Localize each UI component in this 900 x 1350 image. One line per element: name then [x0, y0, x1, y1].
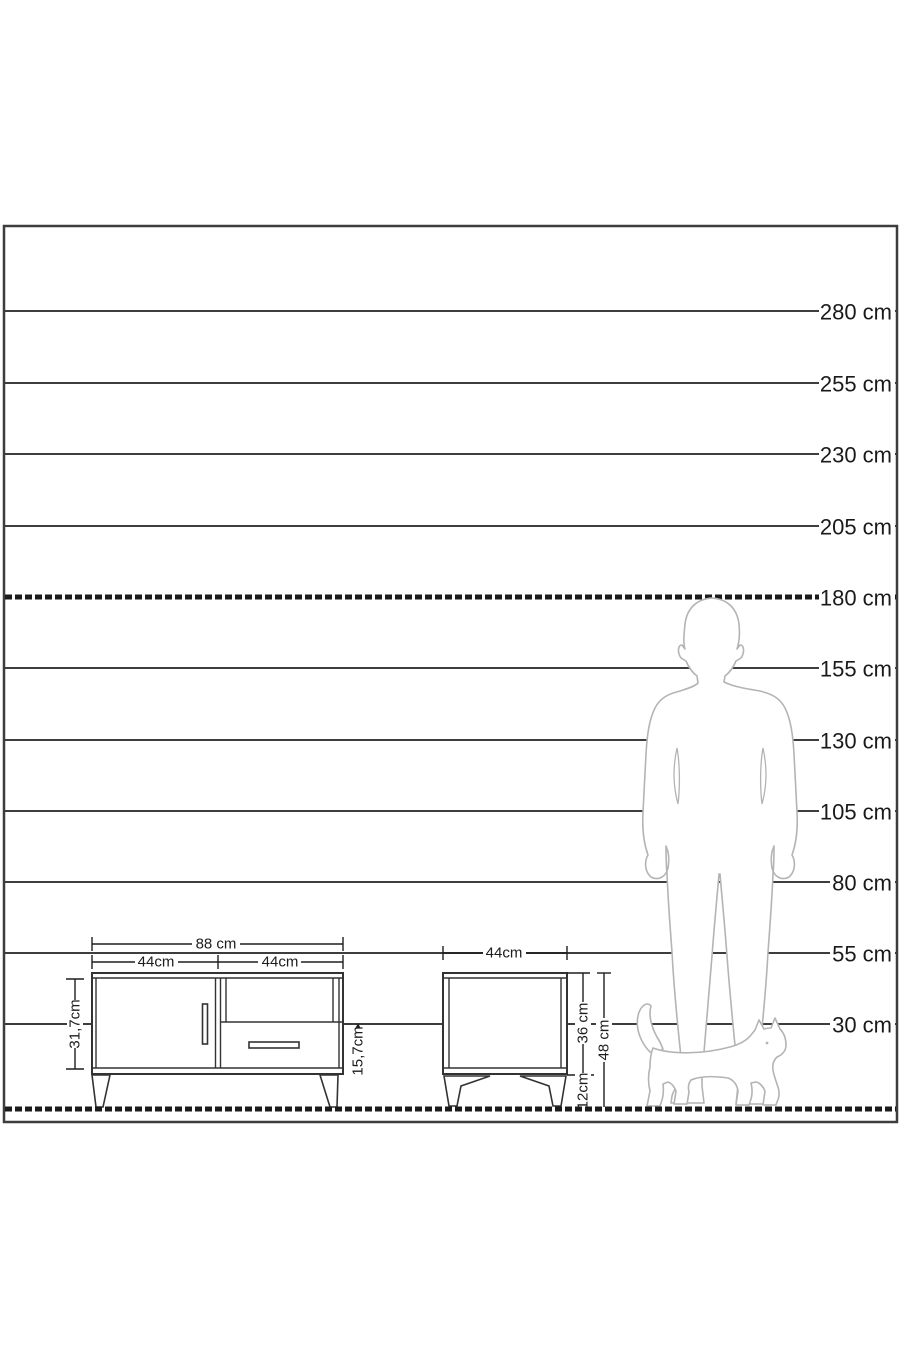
tv-stand-body-height-label: 31,7cm — [67, 999, 84, 1048]
cat-eye — [766, 1042, 769, 1045]
scale-label-30cm: 30 cm — [832, 1013, 892, 1038]
nightstand-total-height-label: 48 cm — [596, 1020, 613, 1061]
tv-stand-body — [92, 973, 343, 1074]
furniture-size-chart-page: 280 cm 255 cm 230 cm 205 cm 180 cm 155 c… — [0, 0, 900, 1350]
scale-label-105cm: 105 cm — [820, 800, 892, 825]
nightstand-body-height-label: 36 cm — [575, 1003, 592, 1044]
tv-stand-width-label: 88 cm — [196, 936, 237, 953]
scale-label-180cm: 180 cm — [820, 586, 892, 611]
scale-label-230cm: 230 cm — [820, 443, 892, 468]
tv-stand-shelf-height-label: 15,7cm — [350, 1026, 367, 1075]
tv-stand-drawer-handle — [249, 1042, 299, 1048]
nightstand-body — [443, 973, 567, 1074]
furniture-size-chart: 280 cm 255 cm 230 cm 205 cm 180 cm 155 c… — [0, 0, 900, 1350]
scale-label-255cm: 255 cm — [820, 372, 892, 397]
scale-label-205cm: 205 cm — [820, 515, 892, 540]
scale-label-155cm: 155 cm — [820, 657, 892, 682]
scale-label-280cm: 280 cm — [820, 300, 892, 325]
scale-label-55cm: 55 cm — [832, 942, 892, 967]
scale-label-130cm: 130 cm — [820, 729, 892, 754]
scale-label-80cm: 80 cm — [832, 871, 892, 896]
tv-stand-door-handle — [203, 1004, 208, 1044]
tv-stand-right-width-label: 44cm — [262, 954, 299, 971]
tv-stand-door-width-label: 44cm — [138, 954, 175, 971]
nightstand-width-label: 44cm — [486, 945, 523, 962]
nightstand-leg-height-label: 12cm — [575, 1073, 592, 1110]
